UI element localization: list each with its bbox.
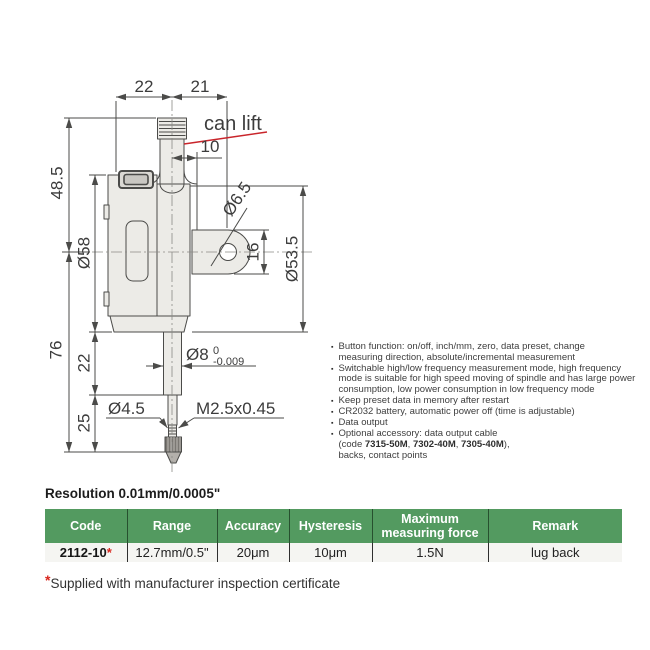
dim-21-top: 21: [191, 77, 210, 96]
dim-22-top: 22: [135, 77, 154, 96]
catalog-page: { "colors": { "table_header_bg": "#539a6…: [0, 0, 650, 650]
cell-code: 2112-10*: [45, 543, 127, 562]
cell-range: 12.7mm/0.5": [127, 543, 217, 562]
thread-spec-label: M2.5x0.45: [196, 399, 275, 418]
spindle-tip-shaft: [168, 395, 177, 425]
feature-item: ▪ Switchable high/low frequency measurem…: [331, 364, 649, 396]
certificate-asterisk: *: [107, 545, 112, 560]
footnote-text: Supplied with manufacturer inspection ce…: [50, 576, 340, 591]
cell-hysteresis: 10μm: [289, 543, 372, 562]
cell-remark: lug back: [488, 543, 622, 562]
certificate-asterisk: *: [45, 572, 50, 588]
dim-d58: Ø58: [75, 237, 94, 269]
dim-d4-5: Ø4.5: [108, 399, 145, 418]
feature-text: Switchable high/low frequency measuremen…: [338, 364, 635, 396]
col-header-range: Range: [127, 509, 217, 543]
tolerance-lower: -0.009: [213, 356, 244, 368]
col-header-code: Code: [45, 509, 127, 543]
footnote: *Supplied with manufacturer inspection c…: [45, 575, 340, 591]
can-lift-label: can lift: [204, 113, 262, 135]
col-header-remark: Remark: [488, 509, 622, 543]
resolution-note: Resolution 0.01mm/0.0005": [45, 486, 220, 501]
feature-text: Button function: on/off, inch/mm, zero, …: [338, 342, 584, 364]
accessory-code: 7302-40M: [413, 439, 456, 450]
col-header-hysteresis: Hysteresis: [289, 509, 372, 543]
contact-knurl: [165, 437, 182, 452]
bullet-icon: ▪: [331, 407, 333, 418]
technical-drawing: 22 21 can lift 10 48.5 Ø58 76 22 25 Ø6.5…: [25, 75, 325, 475]
dim-d6-5: Ø6.5: [219, 178, 255, 219]
dim-d8: Ø8: [186, 345, 209, 364]
accessory-code: 7315-50M: [365, 439, 408, 450]
feature-list: ▪ Button function: on/off, inch/mm, zero…: [331, 342, 649, 461]
dim-d53-5: Ø53.5: [283, 236, 302, 282]
feature-text: Optional accessory: data output cable (c…: [338, 429, 509, 461]
dim-22-spindle: 22: [75, 354, 94, 373]
dim-48-5: 48.5: [48, 166, 67, 199]
bullet-icon: ▪: [331, 396, 333, 407]
body-front: [108, 175, 157, 316]
spec-table: Code Range Accuracy Hysteresis Maximum m…: [45, 509, 622, 562]
cell-accuracy: 20μm: [217, 543, 289, 562]
accessory-code: 7305-40M: [461, 439, 504, 450]
dim-25: 25: [75, 414, 94, 433]
bullet-icon: ▪: [331, 418, 333, 429]
spec-data-row: 2112-10* 12.7mm/0.5" 20μm 10μm 1.5N lug …: [45, 543, 622, 562]
cell-max-force: 1.5N: [372, 543, 488, 562]
spec-header-row: Code Range Accuracy Hysteresis Maximum m…: [45, 509, 622, 543]
feature-item: ▪ Button function: on/off, inch/mm, zero…: [331, 342, 649, 364]
bullet-icon: ▪: [331, 342, 333, 353]
dim-76: 76: [47, 341, 66, 360]
side-button: [104, 205, 109, 219]
body-back: [157, 184, 190, 316]
dim-10: 10: [201, 137, 220, 156]
side-button: [104, 292, 109, 306]
dim-16: 16: [244, 243, 263, 262]
col-header-accuracy: Accuracy: [217, 509, 289, 543]
spindle: [164, 332, 182, 395]
bullet-icon: ▪: [331, 429, 333, 440]
bullet-icon: ▪: [331, 364, 333, 375]
body-bottom: [110, 316, 188, 332]
feature-item: ▪ Optional accessory: data output cable …: [331, 429, 649, 461]
col-header-max-force: Maximum measuring force: [372, 509, 488, 543]
contact-point: [166, 452, 181, 463]
